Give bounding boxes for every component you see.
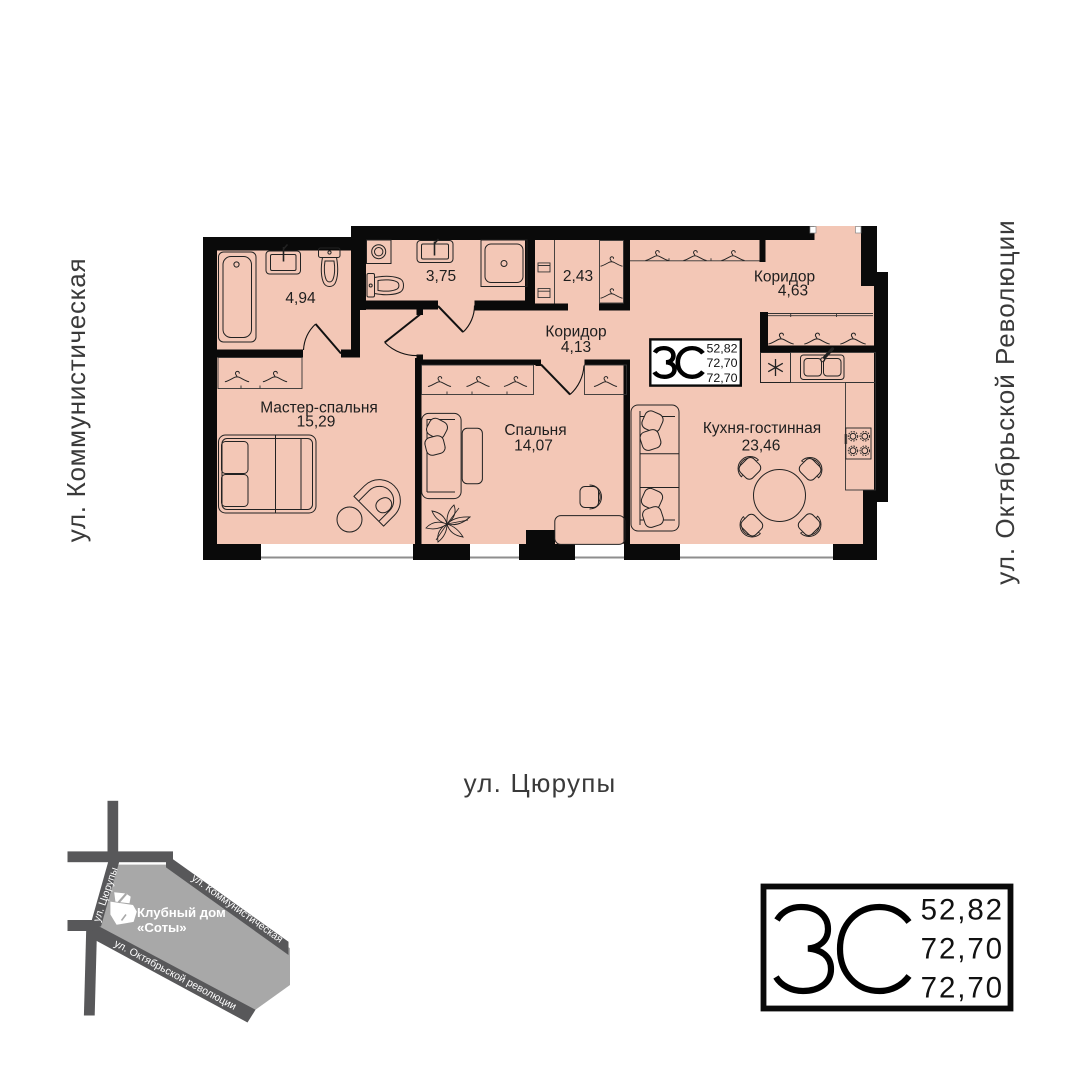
- svg-text:72,70: 72,70: [921, 933, 1004, 966]
- svg-text:Клубный дом: Клубный дом: [137, 905, 226, 920]
- svg-text:52,82: 52,82: [707, 342, 738, 356]
- svg-text:ул. Октябрьской Революции: ул. Октябрьской Революции: [990, 219, 1020, 584]
- svg-text:Спальня: Спальня: [504, 422, 566, 439]
- svg-text:Кухня-гостинная: Кухня-гостинная: [703, 420, 821, 437]
- svg-text:72,70: 72,70: [707, 356, 738, 370]
- svg-text:ул. Цюрупы: ул. Цюрупы: [464, 768, 617, 798]
- svg-text:4,63: 4,63: [778, 283, 808, 300]
- svg-text:52,82: 52,82: [921, 894, 1004, 927]
- svg-text:2,43: 2,43: [563, 268, 593, 285]
- svg-text:«Соты»: «Соты»: [137, 920, 187, 935]
- svg-text:4,13: 4,13: [561, 339, 591, 356]
- svg-text:14,07: 14,07: [514, 438, 553, 455]
- svg-text:3,75: 3,75: [426, 268, 456, 285]
- svg-text:4,94: 4,94: [285, 290, 316, 307]
- svg-text:Коридор: Коридор: [545, 324, 606, 341]
- svg-text:15,29: 15,29: [297, 414, 336, 431]
- svg-text:23,46: 23,46: [742, 438, 781, 455]
- svg-text:72,70: 72,70: [921, 972, 1004, 1005]
- svg-text:ул. Коммунистическая: ул. Коммунистическая: [61, 258, 91, 543]
- svg-text:72,70: 72,70: [707, 371, 738, 385]
